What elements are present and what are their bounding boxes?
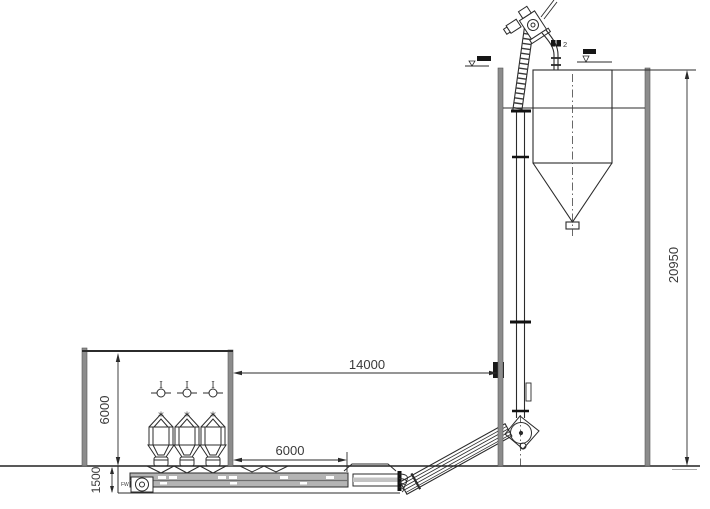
discharge-pipe: [542, 30, 561, 70]
arrow-up-icon: [685, 70, 689, 79]
conveyor-inlet-hopper: [344, 464, 396, 471]
storage-bin: I *: [148, 381, 174, 466]
dimension-horizontal-span: 14000: [233, 357, 498, 375]
conveyor-length-label: 6000: [276, 443, 305, 458]
level-triangle-icon: [469, 61, 475, 66]
building-height-label: 6000: [97, 396, 112, 425]
dimension-building-height: 6000: [97, 353, 120, 466]
elevator-head: [500, 3, 550, 52]
tower-right-wall: [645, 68, 650, 466]
bin-level-indicator-icon: [157, 389, 165, 397]
arrow-left-icon: [233, 371, 242, 375]
pit-depth-label: 1500: [89, 466, 103, 493]
elevator-boot: [505, 416, 539, 449]
elevation-marker-left: [465, 56, 491, 66]
arrow-up-icon: [116, 353, 120, 362]
arrow-left-icon: [233, 458, 242, 462]
machine-number: 2: [563, 40, 567, 49]
arrow-up-icon: [110, 467, 114, 474]
pit-funnel-lines: [240, 466, 288, 472]
building-left-wall: [82, 348, 87, 466]
machine-label-glyph-blob: [551, 40, 556, 47]
dimension-conveyor-length: 6000: [233, 443, 347, 472]
bin-level-indicator-icon: [183, 389, 191, 397]
elevation-value-blob: [583, 49, 596, 54]
dimension-pit-depth: 1500: [89, 466, 114, 493]
technical-drawing: I * I * I *: [0, 0, 710, 509]
arrow-down-icon: [110, 486, 114, 493]
bin-discharge-funnels: [147, 466, 226, 473]
silo: [533, 70, 612, 236]
storage-bin: I *: [174, 381, 200, 466]
head-vent-lines: [541, 0, 557, 19]
building-right-wall: [228, 350, 233, 466]
dimension-overall-height: 20950: [666, 70, 689, 466]
machine-tag: 2: [551, 40, 567, 49]
tower-left-wall: [498, 68, 503, 466]
ground-line: [0, 466, 700, 470]
horizontal-span-label: 14000: [349, 357, 385, 372]
overall-height-label: 20950: [666, 247, 681, 283]
machine-label-glyph-blob: [557, 40, 562, 47]
drive-label: FW: [121, 482, 129, 488]
level-triangle-icon: [583, 56, 589, 62]
arrow-down-icon: [685, 457, 689, 466]
arrow-right-icon: [338, 458, 347, 462]
storage-bins: I * I * I *: [148, 381, 226, 466]
drag-conveyor: FW: [121, 471, 402, 492]
leg-guide: [526, 383, 531, 401]
storage-bin: I *: [200, 381, 226, 466]
bin-level-indicator-icon: [209, 389, 217, 397]
elevation-value-blob: [477, 56, 491, 61]
elevation-drawing-svg: I * I * I *: [0, 0, 710, 509]
inclined-conveyor: [399, 422, 513, 496]
conveyor-drive-motor-icon: [136, 478, 149, 491]
arrow-down-icon: [116, 457, 120, 466]
elevation-marker-right: [577, 49, 612, 62]
